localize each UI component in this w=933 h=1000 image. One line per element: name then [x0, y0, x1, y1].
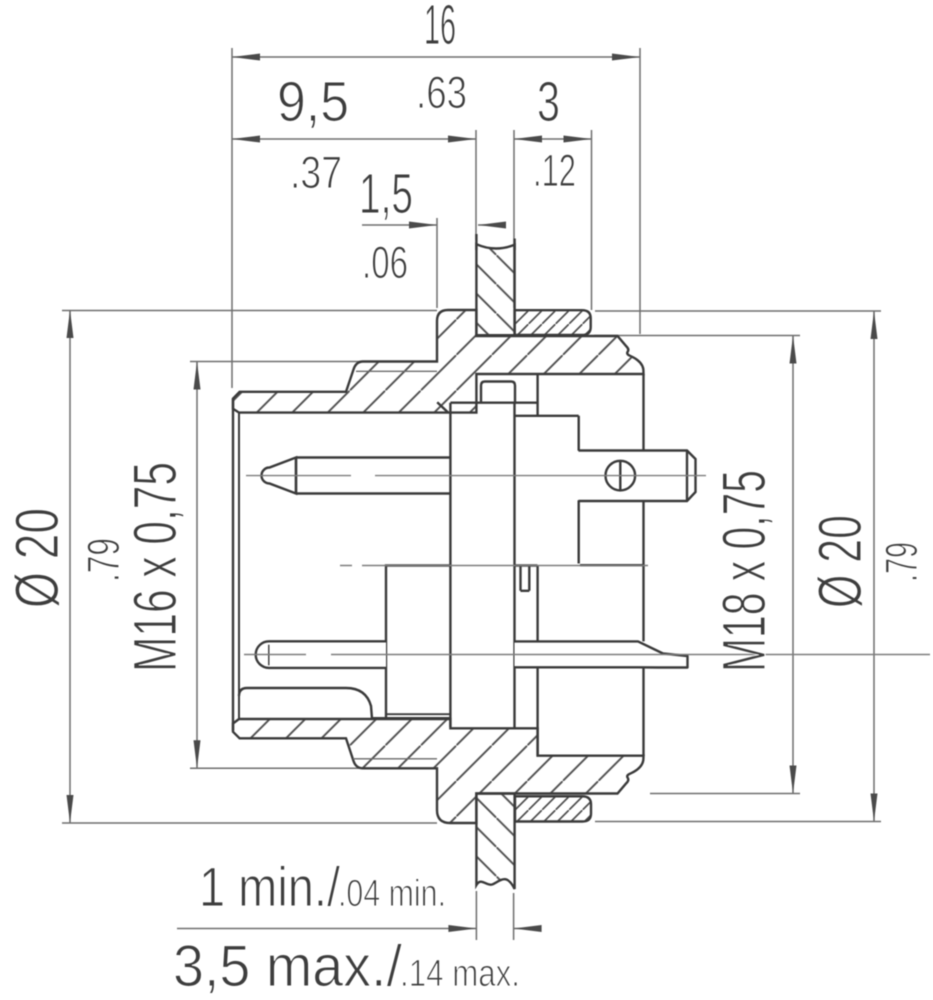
svg-text:.37: .37 — [290, 147, 342, 198]
svg-text:1 min./: 1 min./ — [199, 855, 340, 918]
svg-text:.04 min.: .04 min. — [338, 873, 446, 915]
svg-text:16: 16 — [424, 0, 456, 57]
svg-text:M18 x 0,75: M18 x 0,75 — [710, 470, 778, 672]
svg-text:M16 x 0,75: M16 x 0,75 — [121, 462, 189, 672]
svg-text:.14 max.: .14 max. — [400, 953, 520, 995]
svg-text:.79: .79 — [78, 538, 129, 582]
svg-text:3,5 max./: 3,5 max./ — [173, 934, 403, 999]
svg-text:1,5: 1,5 — [359, 162, 413, 226]
svg-text:9,5: 9,5 — [277, 70, 349, 134]
svg-text:.79: .79 — [876, 542, 927, 582]
svg-text:3: 3 — [537, 70, 560, 134]
svg-text:Ø 20: Ø 20 — [806, 515, 874, 608]
svg-text:Ø 20: Ø 20 — [3, 508, 71, 608]
svg-text:.12: .12 — [533, 145, 576, 196]
svg-text:.06: .06 — [362, 237, 408, 288]
svg-text:.63: .63 — [416, 67, 467, 118]
